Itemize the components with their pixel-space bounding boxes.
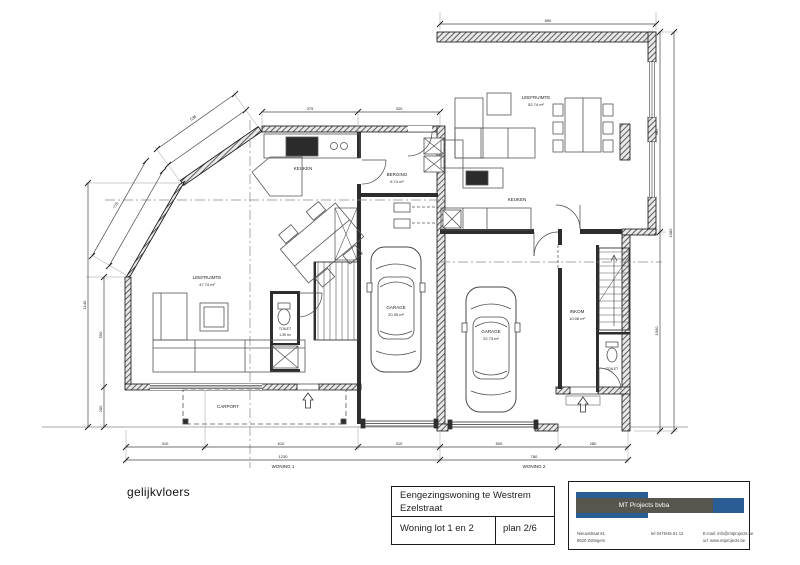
title-block: Eengezingswoning te Westrem Ezelstraat W… <box>391 486 555 545</box>
title-block-row2: Woning lot 1 en 2 plan 2/6 <box>392 517 554 544</box>
dim-lt1: 375 <box>307 106 314 111</box>
dim-l1: 550 <box>98 331 103 338</box>
company-logo-text: MT Projects bvba <box>599 499 689 512</box>
room-garage2-name: GARAGE <box>481 329 500 334</box>
dim-l2: 200 <box>98 405 103 412</box>
dim-lt2: 320 <box>396 106 403 111</box>
company-email: E-mail: info@mtprojects.be <box>703 531 753 538</box>
room-leefruimte1-area: 47.74 m² <box>199 282 215 287</box>
dim-l-total: 1140 <box>82 300 87 309</box>
dim-r-total: 1985 <box>668 228 673 238</box>
company-address-line2: 9620 Zottegem <box>577 538 605 545</box>
floor-label: gelijkvloers <box>127 485 190 499</box>
room-toilet1-name: TOILET <box>279 327 292 331</box>
dim-w1-name: WONING 1 <box>272 464 295 469</box>
room-keuken1-name: KEUKEN <box>294 166 313 171</box>
dim-r1: 985 <box>654 128 659 135</box>
dimension-chains <box>88 24 674 460</box>
room-inkom-area: 10.06 m² <box>569 316 585 321</box>
company-address-line1: Nieuwstraat 81 <box>577 531 605 538</box>
room-carport-name: CARPORT <box>217 404 239 409</box>
dim-dA: 536 <box>189 113 198 121</box>
company-phone: tel 0476/45 61 12 <box>651 531 683 538</box>
dim-w2-total: 780 <box>531 454 538 459</box>
dim-b2: 610 <box>278 441 285 446</box>
dim-dB: 775 <box>112 200 120 209</box>
room-keuken2-name: KEUKEN <box>508 197 527 202</box>
room-toilet1-area: 1.35 m² <box>279 333 292 337</box>
logo-blue-right <box>713 498 744 513</box>
dim-top-total: 890 <box>545 18 552 23</box>
company-url: url: www.mtprojects.be <box>703 538 753 545</box>
doors <box>297 132 621 412</box>
dim-r2: 1000 <box>654 326 659 336</box>
dim-b4: 500 <box>496 441 503 446</box>
company-block: MT Projects bvba Nieuwstraat 81 9620 Zot… <box>568 481 750 550</box>
project-street: Ezelstraat <box>400 502 554 515</box>
dim-w1-total: 1230 <box>279 454 289 459</box>
room-inkom-name: INKOM <box>570 309 585 314</box>
room-leefruimte2-area: 52.74 m² <box>528 102 544 107</box>
room-toilet2-name: TOILET <box>606 367 619 371</box>
dim-b5: 280 <box>590 441 597 446</box>
room-garage2-area: 22.73 m² <box>483 336 499 341</box>
room-garage1-name: GARAGE <box>386 305 405 310</box>
company-address: Nieuwstraat 81 9620 Zottegem <box>577 531 605 544</box>
dimension-ticks <box>85 21 677 463</box>
dimension-labels: 310 610 310 500 280 1230 WONING 1 780 WO… <box>82 18 673 469</box>
plan-number: plan 2/6 <box>496 517 554 544</box>
project-title: Eengezingswoning te Westrem <box>400 489 554 502</box>
company-web: E-mail: info@mtprojects.be url: www.mtpr… <box>703 531 753 544</box>
car-icon <box>462 287 520 412</box>
dim-b1: 310 <box>162 441 169 446</box>
room-leefruimte1-name: LEEFRUIMTE <box>193 275 222 280</box>
room-berging-name: BERGING <box>387 172 408 177</box>
title-block-project: Eengezingswoning te Westrem Ezelstraat <box>392 487 554 517</box>
dim-b3: 310 <box>396 441 403 446</box>
room-berging-area: 6.74 m² <box>390 179 404 184</box>
dim-w2-name: WONING 2 <box>523 464 546 469</box>
extension-lines <box>86 12 678 463</box>
carport-outline <box>183 390 346 424</box>
lot-label: Woning lot 1 en 2 <box>392 517 496 544</box>
room-leefruimte2-name: LEEFRUIMTE <box>522 95 551 100</box>
room-garage1-area: 20.35 m² <box>388 312 404 317</box>
